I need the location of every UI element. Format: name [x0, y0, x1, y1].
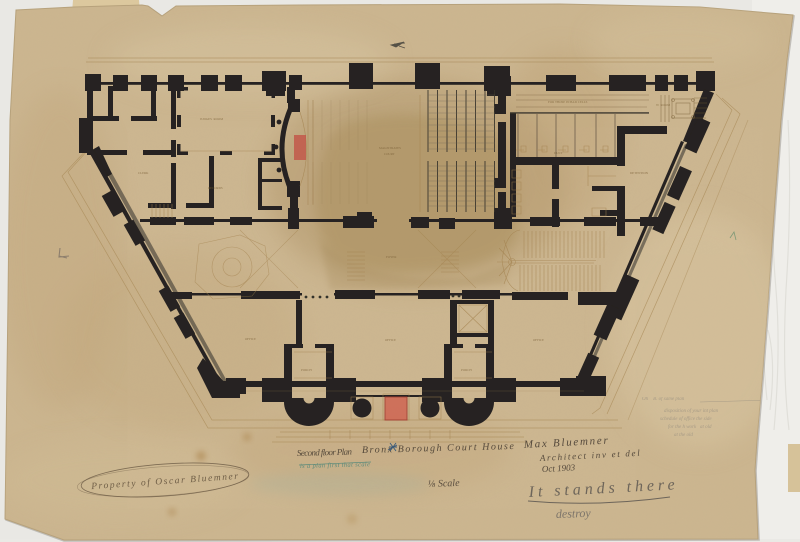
svg-text:OFFICE: OFFICE: [385, 338, 396, 342]
svg-text:OFFICE: OFFICE: [245, 337, 256, 341]
svg-text:DUCT: DUCT: [554, 151, 563, 155]
svg-text:W ROOM: W ROOM: [656, 103, 670, 107]
svg-text:JUDGES ROOM: JUDGES ROOM: [200, 117, 223, 121]
svg-text:FOYER: FOYER: [386, 255, 397, 259]
svg-text:OFFICE: OFFICE: [533, 338, 544, 342]
svg-text:destroy: destroy: [556, 506, 592, 521]
svg-text:Oh B. of same plan: Oh B. of same plan: [642, 397, 685, 402]
svg-text:disposition of your int plan: disposition of your int plan: [664, 409, 719, 414]
svg-text:COURT: COURT: [384, 152, 395, 156]
svg-text:for the h work at old: for the h work at old: [668, 425, 712, 430]
svg-text:MAGISTRATES: MAGISTRATES: [379, 146, 401, 150]
svg-text:at the old: at the old: [674, 433, 693, 438]
svg-text:PORCH: PORCH: [301, 368, 312, 372]
svg-text:RECORDS: RECORDS: [208, 186, 223, 190]
svg-text:Oct 1903: Oct 1903: [542, 462, 576, 474]
svg-text:DETENTION: DETENTION: [630, 171, 649, 175]
svg-text:schedule of office the side: schedule of office the side: [660, 417, 712, 422]
svg-text:FOR THOSE IN BAD CELLS: FOR THOSE IN BAD CELLS: [548, 100, 588, 104]
svg-text:Second floor Plan: Second floor Plan: [297, 447, 353, 458]
svg-text:PORCH: PORCH: [461, 368, 472, 372]
svg-text:CLERK: CLERK: [138, 171, 149, 175]
svg-text:⅛ Scale: ⅛ Scale: [428, 478, 461, 490]
